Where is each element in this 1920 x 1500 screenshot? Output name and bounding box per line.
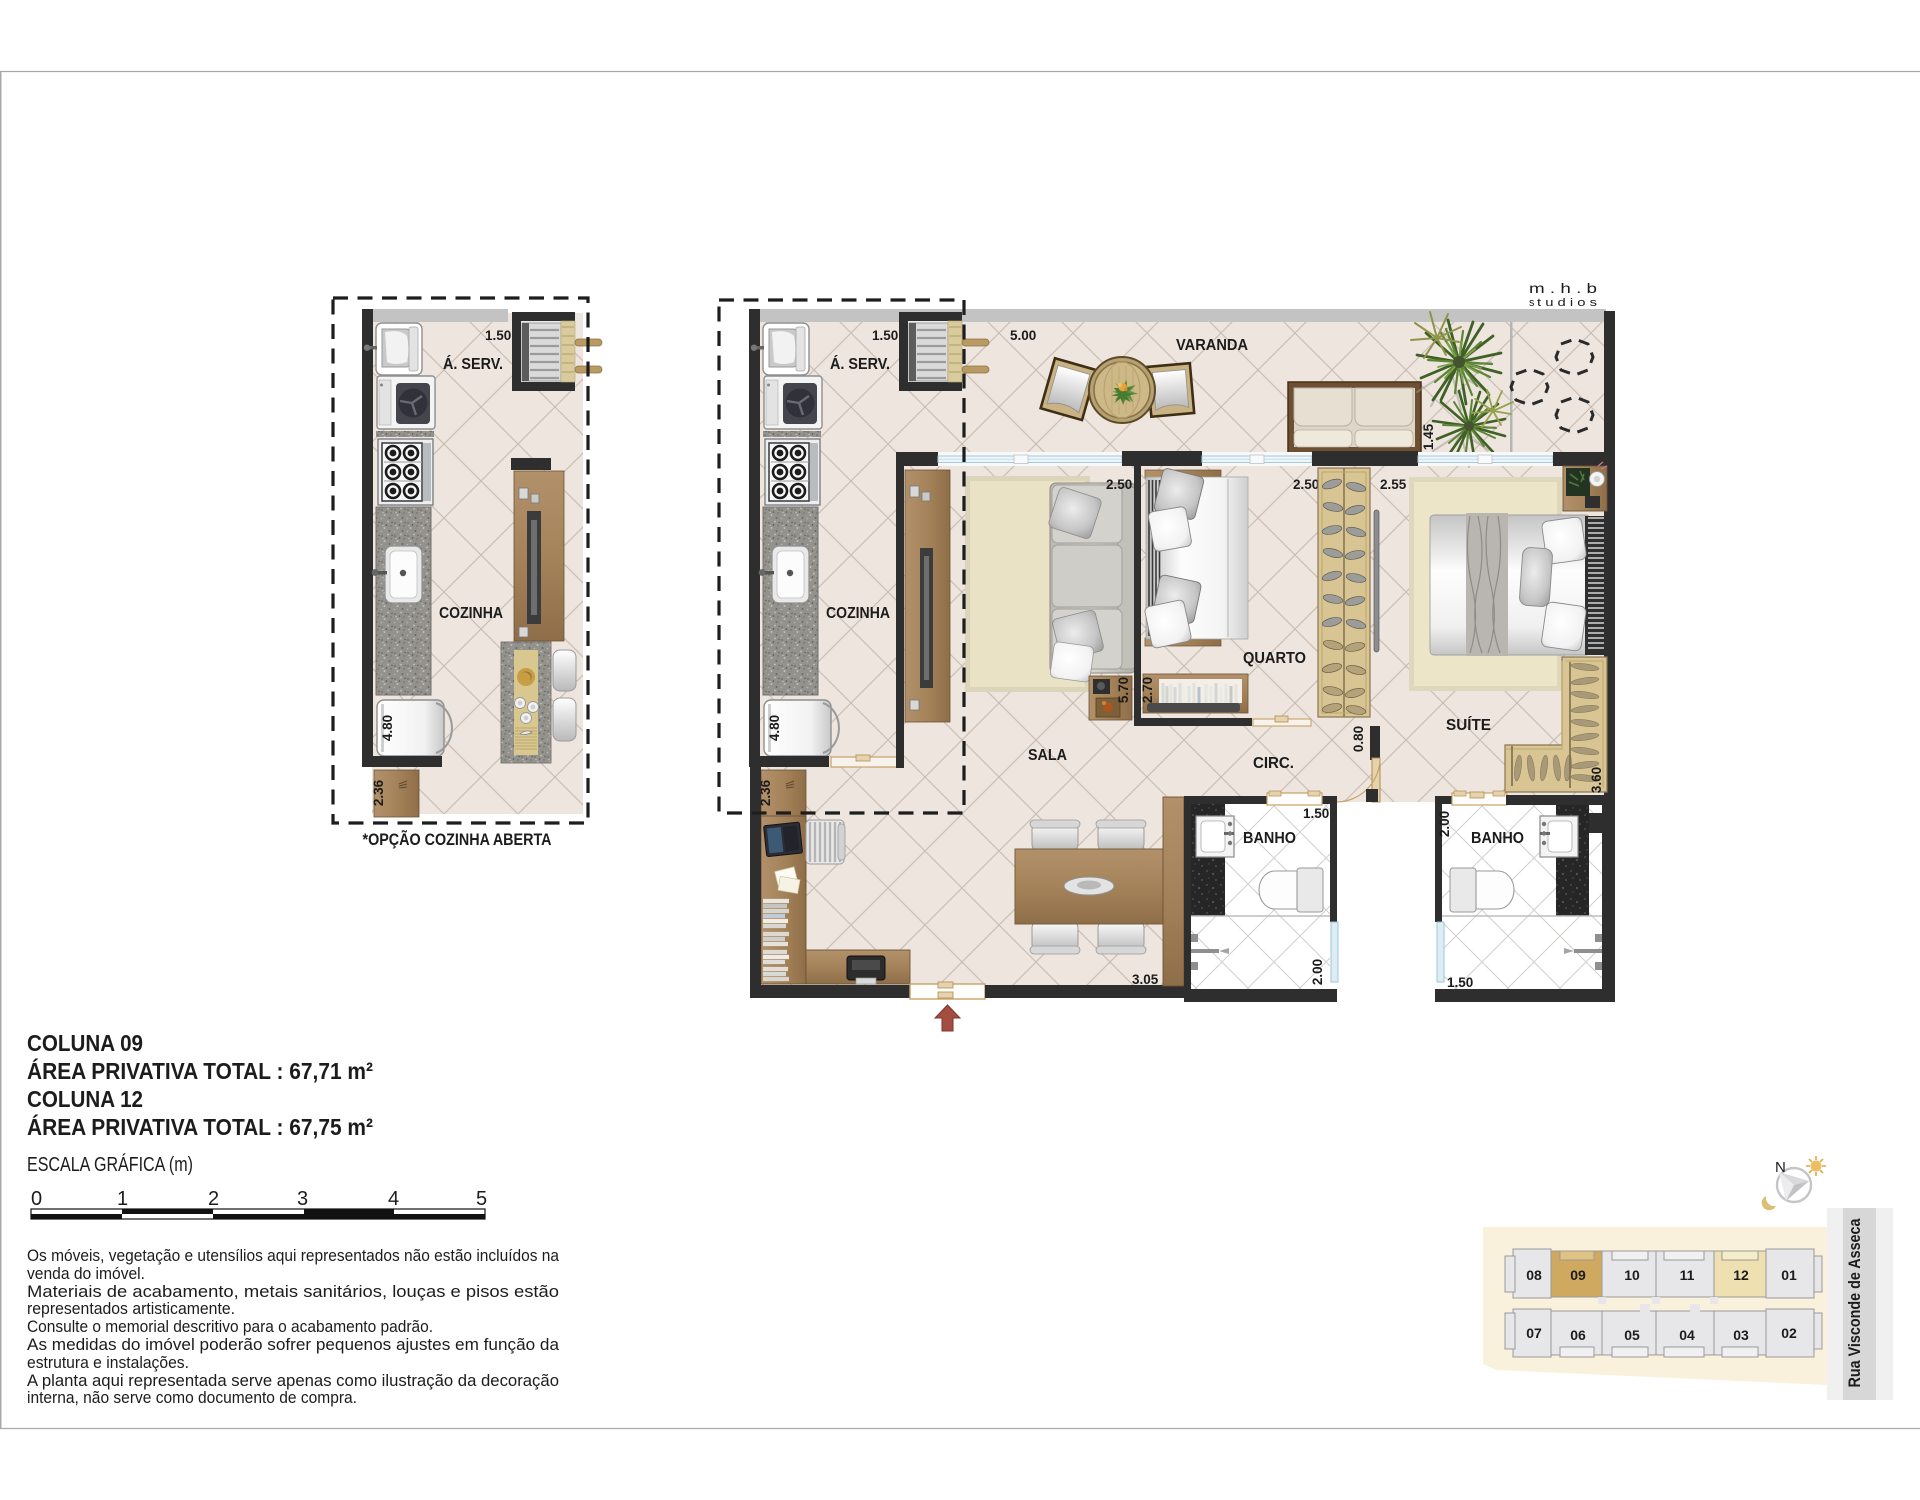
svg-text:interna, não serve como docume: interna, não serve como documento de com… (27, 1388, 357, 1407)
svg-text:2.50: 2.50 (1106, 477, 1132, 492)
svg-text:10: 10 (1624, 1267, 1640, 1283)
svg-text:Consulte o memorial descritivo: Consulte o memorial descritivo para o ac… (27, 1317, 433, 1336)
svg-text:2.70: 2.70 (1140, 677, 1155, 703)
svg-text:5.70: 5.70 (1116, 677, 1131, 703)
svg-text:2: 2 (208, 1188, 219, 1210)
svg-text:Os móveis, vegetação e utensíl: Os móveis, vegetação e utensílios aqui r… (27, 1246, 559, 1265)
svg-text:03: 03 (1733, 1327, 1749, 1343)
svg-text:1: 1 (117, 1188, 128, 1210)
svg-text:5.00: 5.00 (1010, 328, 1036, 343)
svg-text:BANHO: BANHO (1471, 830, 1524, 847)
svg-text:BANHO: BANHO (1243, 830, 1296, 847)
svg-text:ÁREA PRIVATIVA TOTAL : 67,71: ÁREA PRIVATIVA TOTAL : 67,71 m² (27, 1057, 373, 1084)
svg-text:01: 01 (1781, 1267, 1797, 1283)
svg-text:4: 4 (388, 1188, 399, 1210)
svg-text:t u d i o s: t u d i o s (1537, 297, 1598, 309)
svg-text:VARANDA: VARANDA (1176, 337, 1248, 354)
svg-text:2.00: 2.00 (1437, 811, 1452, 837)
svg-text:02: 02 (1781, 1325, 1797, 1341)
svg-text:Rua Visconde de Asseca: Rua Visconde de Asseca (1845, 1218, 1864, 1387)
svg-text:s: s (1529, 297, 1535, 309)
svg-text:5: 5 (476, 1188, 487, 1210)
svg-text:m . h . b: m . h . b (1529, 280, 1597, 296)
svg-text:12: 12 (1733, 1267, 1749, 1283)
svg-text:08: 08 (1526, 1267, 1542, 1283)
svg-text:2.50: 2.50 (1293, 477, 1319, 492)
svg-text:As medidas do imóvel poder: As medidas do imóvel poderão sofrer pequ… (27, 1335, 560, 1354)
svg-text:SUÍTE: SUÍTE (1446, 715, 1491, 734)
svg-text:3: 3 (297, 1188, 308, 1210)
svg-text:2.55: 2.55 (1380, 477, 1407, 492)
svg-text:05: 05 (1624, 1327, 1640, 1343)
svg-text:ÁREA PRIVATIVA TOTAL : 67,75: ÁREA PRIVATIVA TOTAL : 67,75 m² (27, 1113, 373, 1140)
svg-text:3.05: 3.05 (1132, 972, 1159, 987)
svg-text:*OPÇÃO COZINHA ABERTA: *OPÇÃO COZINHA ABERTA (363, 829, 552, 849)
svg-text:representados artisticamente.: representados artisticamente. (27, 1299, 235, 1318)
svg-text:N: N (1775, 1159, 1786, 1176)
svg-text:09: 09 (1570, 1267, 1586, 1283)
svg-text:0.80: 0.80 (1351, 726, 1366, 752)
svg-text:COLUNA 12: COLUNA 12 (27, 1086, 143, 1112)
svg-text:2.00: 2.00 (1310, 959, 1325, 985)
svg-text:CIRC.: CIRC. (1253, 755, 1294, 772)
svg-text:1.45: 1.45 (1421, 423, 1436, 450)
svg-text:ESCALA GRÁFICA (m): ESCALA GRÁFICA (m) (27, 1153, 193, 1176)
svg-text:0: 0 (31, 1188, 42, 1210)
svg-text:11: 11 (1680, 1267, 1695, 1283)
svg-text:estrutura e instalações.: estrutura e instalações. (27, 1353, 189, 1372)
svg-text:SALA: SALA (1028, 747, 1067, 764)
svg-text:1.50: 1.50 (1303, 806, 1329, 821)
svg-text:06: 06 (1570, 1327, 1586, 1343)
svg-text:QUARTO: QUARTO (1243, 650, 1306, 667)
svg-text:venda do imóvel.: venda do imóvel. (27, 1264, 145, 1283)
svg-text:07: 07 (1526, 1325, 1542, 1341)
svg-text:3.60: 3.60 (1589, 767, 1604, 793)
svg-text:1.50: 1.50 (1447, 975, 1473, 990)
svg-text:COLUNA 09: COLUNA 09 (27, 1030, 143, 1056)
svg-text:04: 04 (1679, 1327, 1695, 1343)
